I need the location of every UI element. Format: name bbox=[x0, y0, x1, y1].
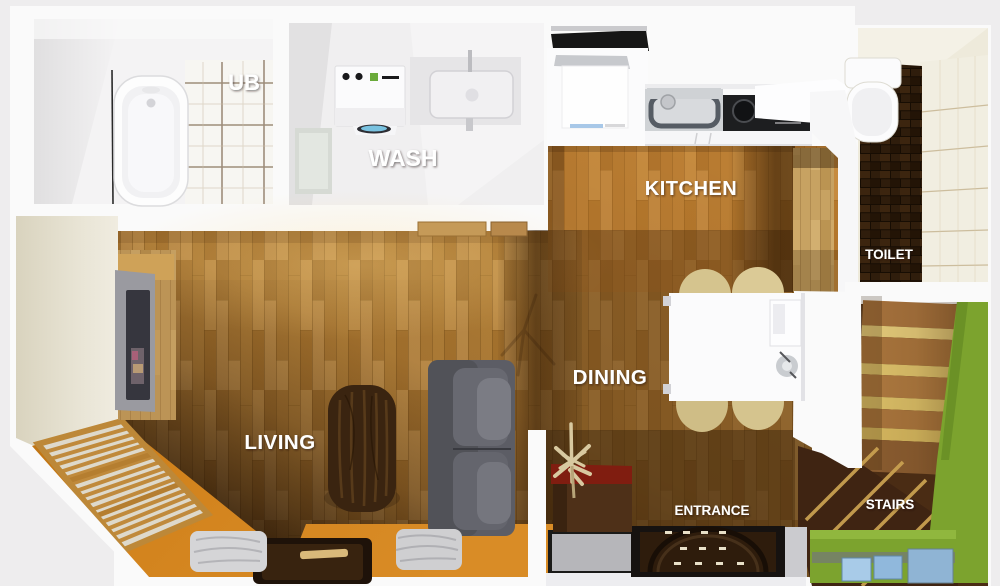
svg-text:WASH: WASH bbox=[369, 145, 438, 171]
svg-text:UB: UB bbox=[228, 70, 260, 95]
svg-text:KITCHEN: KITCHEN bbox=[645, 178, 737, 200]
svg-text:LIVING: LIVING bbox=[244, 431, 315, 454]
svg-text:DINING: DINING bbox=[573, 366, 648, 389]
svg-text:STAIRS: STAIRS bbox=[866, 497, 915, 512]
svg-text:ENTRANCE: ENTRANCE bbox=[674, 503, 749, 518]
svg-text:TOILET: TOILET bbox=[865, 247, 914, 262]
